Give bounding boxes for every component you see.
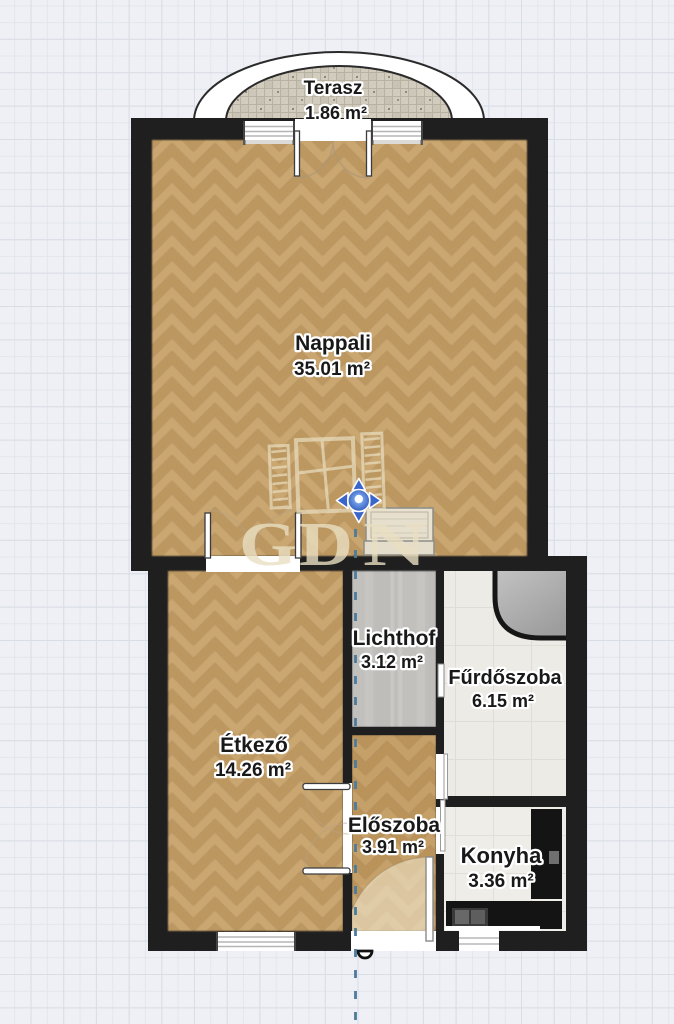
svg-text:N: N bbox=[363, 511, 427, 579]
svg-text:35.01 m²: 35.01 m² bbox=[294, 359, 370, 380]
svg-text:14.26 m²: 14.26 m² bbox=[215, 760, 291, 781]
svg-text:Lichthof: Lichthof bbox=[353, 627, 437, 650]
svg-text:Előszoba: Előszoba bbox=[348, 814, 441, 837]
svg-text:D: D bbox=[299, 511, 353, 579]
svg-text:Étkező: Étkező bbox=[220, 734, 288, 757]
svg-text:3.12 m²: 3.12 m² bbox=[361, 652, 423, 672]
svg-text:Konyha: Konyha bbox=[461, 843, 542, 868]
svg-text:3.91 m²: 3.91 m² bbox=[362, 837, 424, 857]
svg-text:G: G bbox=[239, 511, 297, 579]
svg-text:6.15 m²: 6.15 m² bbox=[472, 691, 534, 711]
svg-text:3.36 m²: 3.36 m² bbox=[468, 871, 533, 892]
svg-text:Terasz: Terasz bbox=[304, 78, 363, 99]
svg-text:Nappali: Nappali bbox=[295, 332, 371, 355]
svg-text:1.86 m²: 1.86 m² bbox=[305, 103, 367, 123]
svg-text:Fűrdőszoba: Fűrdőszoba bbox=[448, 667, 562, 689]
